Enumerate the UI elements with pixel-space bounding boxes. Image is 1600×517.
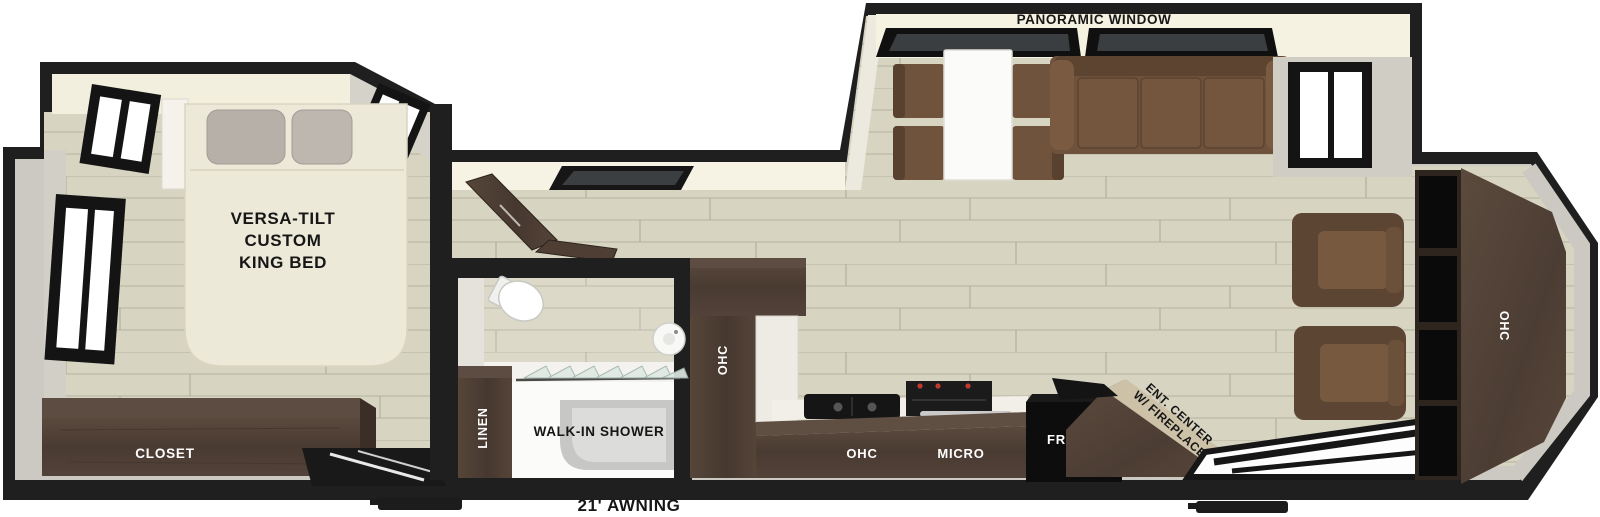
rear-cabinet-shelf xyxy=(1419,256,1457,322)
bedroom-wardrobe-pillar xyxy=(162,99,188,189)
ohc-kitchen-label: OHC xyxy=(846,446,877,461)
micro-label: MICRO xyxy=(937,446,984,461)
rear-cabinet-shelf xyxy=(1419,406,1457,476)
slideout-return-wall xyxy=(1273,57,1412,177)
king-bed: VERSA-TILT CUSTOM KING BED xyxy=(185,104,407,366)
bathroom: LINEN WALK-IN SHOWER xyxy=(440,258,692,480)
bathroom-sink xyxy=(653,323,685,355)
bed-pillow-left xyxy=(207,110,285,164)
pantry-top-edge xyxy=(690,258,806,268)
ohc-pantry-label: OHC xyxy=(716,345,730,375)
kitchen-sink xyxy=(804,394,900,419)
linen-cabinet: LINEN xyxy=(458,366,512,478)
recliner-chair-bottom xyxy=(1294,326,1406,420)
panoramic-window-glass-right xyxy=(1085,28,1278,57)
bathroom-wall-face-left xyxy=(458,278,484,368)
floorplan-svg: VERSA-TILT CUSTOM KING BED CLOSET xyxy=(0,0,1600,517)
floorplan-canvas: VERSA-TILT CUSTOM KING BED CLOSET xyxy=(0,0,1600,517)
bed-pillow-right xyxy=(292,110,352,164)
rear-ohc-cabinet: OHC xyxy=(1415,168,1566,484)
pantry-column xyxy=(690,316,756,478)
dinette xyxy=(893,50,1064,180)
bed-foot-rack xyxy=(302,448,446,486)
bed-label-line1: VERSA-TILT xyxy=(231,209,336,228)
panoramic-window-label: PANORAMIC WINDOW xyxy=(1017,12,1172,27)
ohc-rear-label: OHC xyxy=(1497,311,1511,341)
walk-in-shower: WALK-IN SHOWER xyxy=(512,366,688,478)
skylight xyxy=(549,166,694,190)
linen-label: LINEN xyxy=(476,407,490,449)
rear-cabinet-shelf xyxy=(1419,176,1457,248)
bed-label-line3: KING BED xyxy=(239,253,327,272)
walk-in-shower-label: WALK-IN SHOWER xyxy=(534,424,665,439)
recliner-chair-top xyxy=(1292,213,1404,307)
bedroom-window-left-wall xyxy=(44,194,125,364)
closet-label: CLOSET xyxy=(135,446,195,461)
awning-label: 21' AWNING xyxy=(578,496,681,515)
rear-cabinet-shelf xyxy=(1419,330,1457,400)
bed-label-line2: CUSTOM xyxy=(245,231,322,250)
bathroom-tile-upper xyxy=(458,278,674,362)
dinette-table xyxy=(944,50,1012,180)
bedroom-slide-window-left xyxy=(79,84,161,174)
entry-steps-right xyxy=(1188,501,1288,513)
bedroom-section: VERSA-TILT CUSTOM KING BED CLOSET xyxy=(42,74,446,486)
entry-steps-left xyxy=(370,497,462,510)
sofa xyxy=(1050,56,1290,154)
